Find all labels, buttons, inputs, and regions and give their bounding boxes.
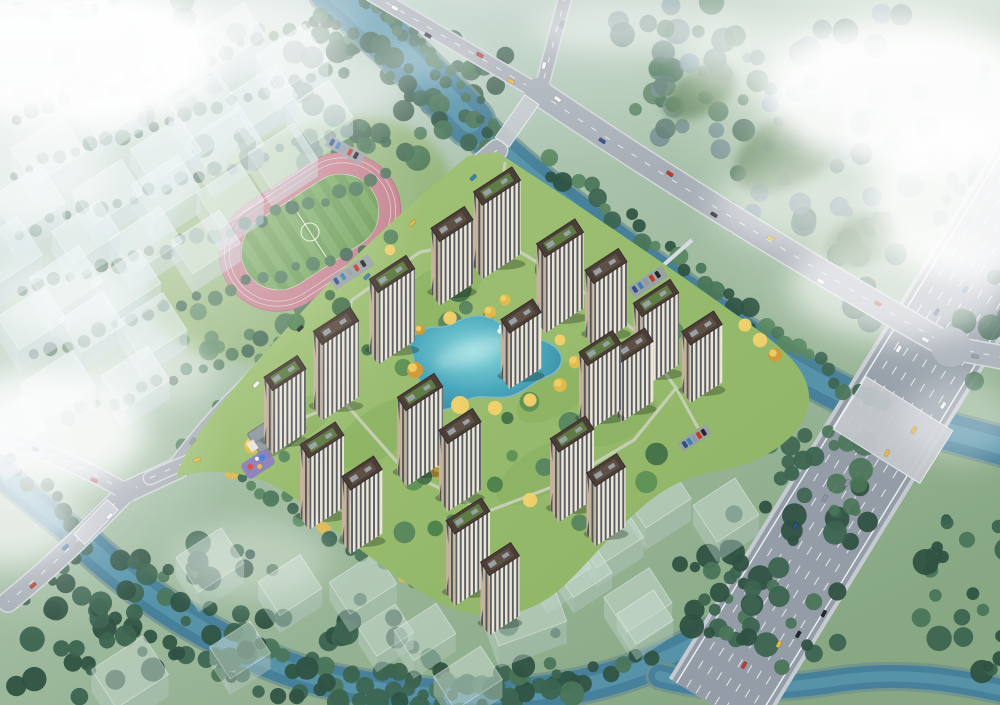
tree [703,562,721,580]
tree [704,627,715,638]
tree [633,219,646,232]
tree [967,587,980,600]
tree [232,605,250,623]
tree [501,412,513,424]
tree [540,678,561,699]
tree [929,589,942,602]
tree [6,676,26,696]
tree [524,394,531,401]
tree [742,596,761,615]
tree [181,616,191,626]
tree [983,661,994,672]
tree [931,541,943,553]
tree [797,428,812,443]
tree [615,656,632,673]
tree [782,455,796,469]
cloud [170,520,330,600]
tree [719,626,734,641]
tree [829,440,840,451]
tree [321,531,337,547]
tree [572,174,586,188]
tree [318,674,336,692]
tree [553,172,573,192]
tree [959,532,975,548]
tree [698,593,710,605]
tree [744,580,761,597]
tree [554,379,562,387]
tree [828,582,846,600]
tree [68,640,85,657]
tree [408,363,417,372]
tree [977,604,989,616]
tree [843,498,860,515]
tree [168,649,180,661]
atmospheric-haze [0,0,1000,170]
tree [926,626,951,651]
tree [805,593,822,610]
tree [797,488,813,504]
tree [485,307,492,314]
tree [786,618,797,629]
tree [571,514,588,531]
tree [427,521,443,537]
tree [500,295,506,301]
tree [99,632,115,648]
tree [506,450,517,461]
tree [829,505,840,516]
tree [459,301,473,315]
tree [343,666,360,683]
tree [287,503,298,514]
tree [390,663,408,681]
tree [709,604,721,616]
tree [768,557,789,578]
tree [489,402,497,410]
cloud [715,165,875,245]
tree [678,264,691,277]
tree [769,349,776,356]
tree [452,397,462,407]
tree [954,609,971,626]
tree [912,608,931,627]
tree [953,627,973,647]
tree [524,494,532,502]
tree [829,634,846,651]
tree [759,501,772,514]
tree [769,586,790,607]
tree [555,335,561,341]
tree [823,521,847,545]
tree [724,571,737,584]
tree [941,516,954,529]
tree [690,562,700,572]
tree [827,474,847,494]
tree [736,633,749,646]
tree [444,312,452,320]
tree [53,640,69,656]
tree [276,648,290,662]
tree [289,689,305,705]
cloud [80,335,220,405]
tree [857,512,878,533]
tree [774,471,788,485]
tree [296,657,319,680]
cloud [790,230,1000,340]
tree [926,562,937,573]
tree [252,685,264,697]
tree [801,639,813,651]
tree [822,425,835,438]
tree [635,471,657,493]
tree [650,241,661,252]
tree [774,659,790,675]
tree [710,583,730,603]
tree [754,632,779,657]
tree [645,443,668,466]
tree [270,688,286,704]
tree [394,521,416,543]
tree [487,477,503,493]
masterplan-scene: Aerial masterplan rendering of a riversi… [0,0,1000,705]
tree [588,661,599,672]
tree [850,475,867,492]
tree [71,688,89,705]
aerial-rendering: Aerial masterplan rendering of a riversi… [0,0,1000,705]
tree [570,357,577,364]
tree [544,657,557,670]
tree [626,208,638,220]
tree [672,556,688,572]
tree [552,669,562,679]
